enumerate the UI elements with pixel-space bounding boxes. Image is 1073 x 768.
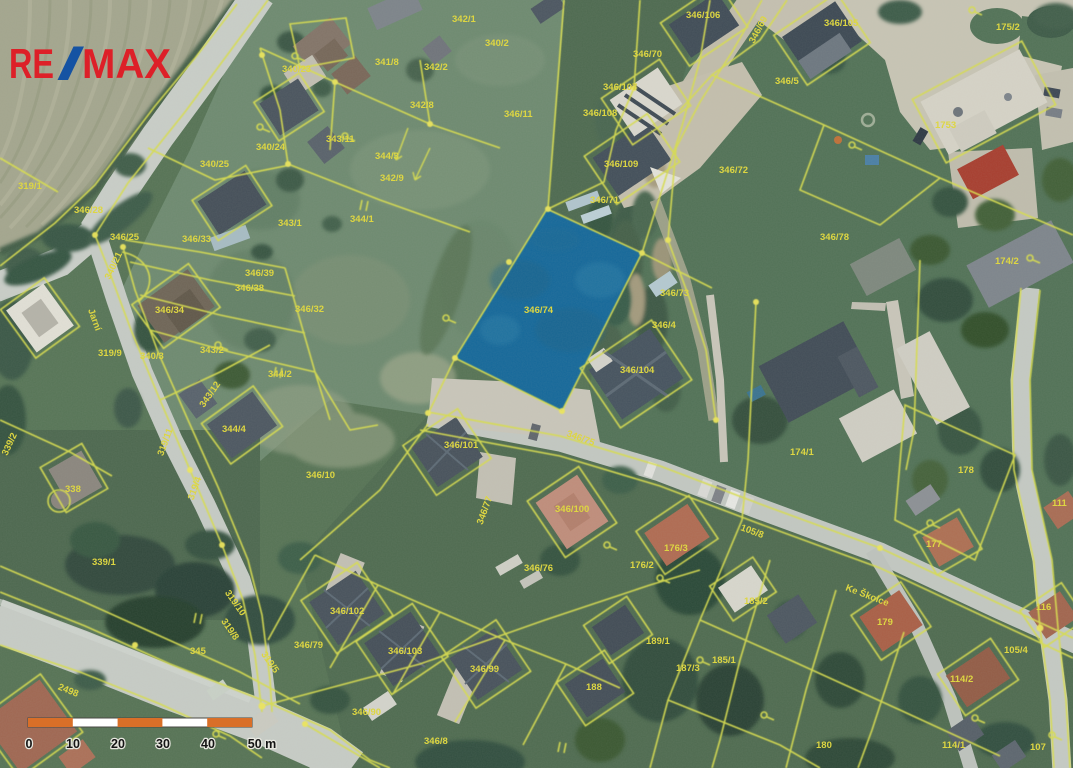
- svg-text:RE: RE: [9, 40, 54, 87]
- svg-text:MAX: MAX: [82, 40, 171, 87]
- svg-text:0: 0: [26, 737, 33, 751]
- svg-text:10: 10: [66, 737, 80, 751]
- svg-text:30: 30: [156, 737, 170, 751]
- svg-text:20: 20: [111, 737, 125, 751]
- svg-text:50 m: 50 m: [248, 737, 277, 751]
- svg-text:40: 40: [201, 737, 215, 751]
